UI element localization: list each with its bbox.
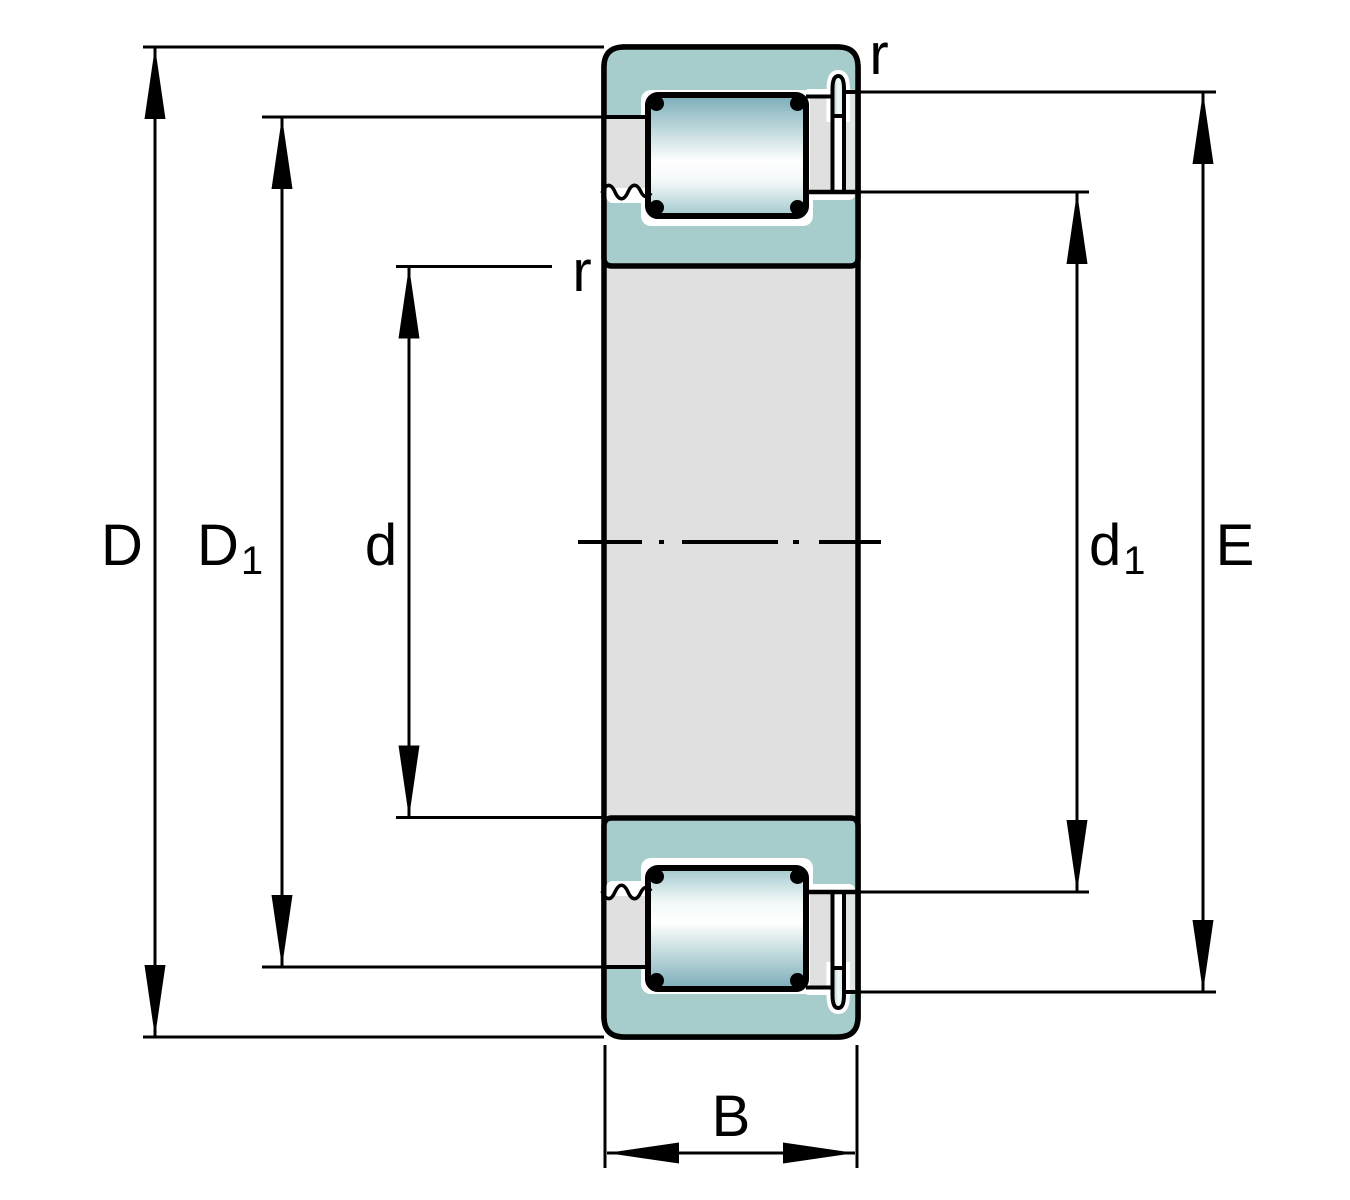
- bearing-upper-half: [602, 47, 860, 266]
- roller-corner-dot: [790, 200, 805, 215]
- dimension-d1: [1067, 192, 1088, 892]
- label-D1: D1: [197, 513, 263, 584]
- roller: [648, 95, 806, 216]
- dimension-D: [145, 47, 166, 1037]
- roller-corner-dot: [790, 96, 805, 111]
- label-B: B: [712, 1084, 751, 1149]
- bearing-lower-half: [602, 818, 860, 1037]
- roller-corner-dot: [649, 96, 664, 111]
- label-d: d: [365, 513, 397, 578]
- bearing-technical-drawing: D D1 d d1 E B r r: [0, 0, 1350, 1200]
- roller-corner-dot: [649, 200, 664, 215]
- dimension-E: [1193, 92, 1214, 992]
- label-r-outer: r: [869, 22, 888, 87]
- dimension-d: [399, 267, 420, 818]
- label-D: D: [101, 513, 143, 578]
- cage-section-left: [607, 117, 649, 188]
- label-r-inner: r: [572, 239, 591, 304]
- dimension-D1: [272, 117, 293, 967]
- label-E: E: [1216, 513, 1255, 578]
- label-d1: d1: [1089, 513, 1146, 584]
- drawing-canvas: D D1 d d1 E B r r: [0, 0, 1350, 1200]
- bearing-cross-section: [578, 47, 881, 1037]
